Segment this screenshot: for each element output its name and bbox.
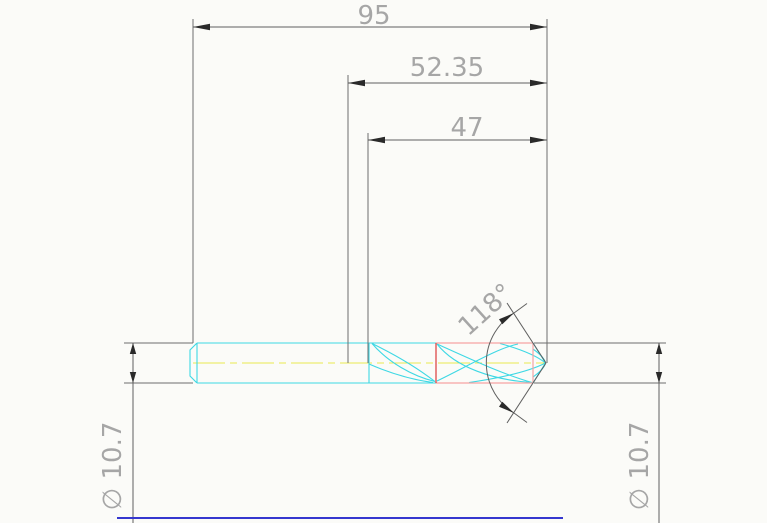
arrow-down-icon <box>499 402 514 413</box>
arrow-left-icon <box>348 80 365 86</box>
dimension-diameter-right: ∅ 10.7 <box>625 343 662 523</box>
arrow-up-icon <box>130 343 136 354</box>
arrow-left-icon <box>368 137 385 143</box>
drill-drawing: 95 52.35 47 118° ∅ 10.7 ∅ 10.7 <box>0 0 767 523</box>
arrow-down-icon <box>130 372 136 383</box>
dim-flute-length-label: 47 <box>450 113 483 143</box>
arrow-right-icon <box>530 137 547 143</box>
dim-point-angle-label: 118° <box>453 278 520 342</box>
dimension-diameter-left: ∅ 10.7 <box>98 343 136 523</box>
extension-lines <box>124 19 666 383</box>
arrow-down-icon <box>656 372 662 383</box>
arrow-up-icon <box>656 343 662 354</box>
arrow-right-icon <box>530 24 547 30</box>
dim-mid-length-label: 52.35 <box>410 53 484 83</box>
dimension-flute-length: 47 <box>368 113 547 143</box>
arrow-right-icon <box>530 80 547 86</box>
dim-overall-length-label: 95 <box>357 1 390 31</box>
arrow-left-icon <box>193 24 210 30</box>
dim-diameter-right-label: ∅ 10.7 <box>625 422 655 511</box>
dimension-overall-length: 95 <box>193 1 547 31</box>
dimension-mid-length: 52.35 <box>348 53 547 86</box>
cad-drawing-canvas: 95 52.35 47 118° ∅ 10.7 ∅ 10.7 <box>0 0 767 523</box>
dim-diameter-left-label: ∅ 10.7 <box>98 422 128 511</box>
